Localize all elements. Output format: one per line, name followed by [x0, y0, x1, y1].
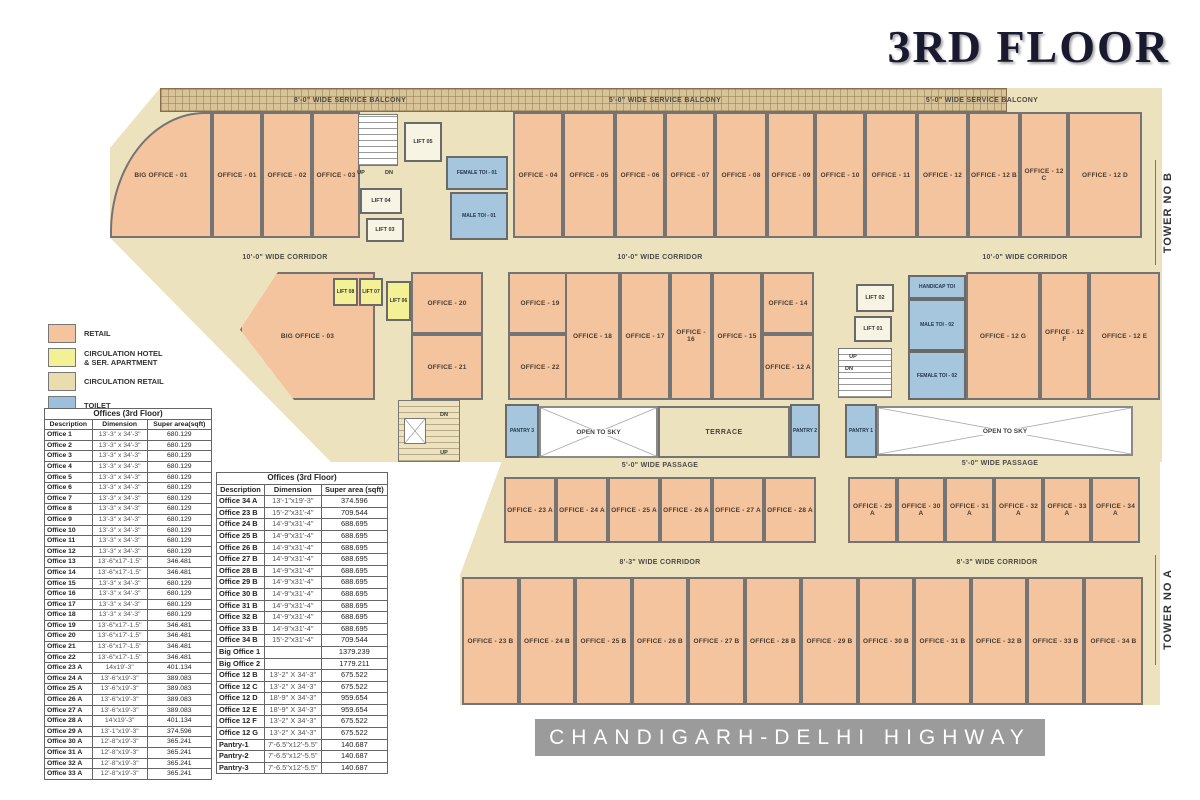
- open-sky-1: OPEN TO SKY: [539, 406, 658, 458]
- pantry-1: PANTRY 1: [845, 404, 877, 458]
- office-08: OFFICE - 08: [715, 112, 767, 238]
- table-title-row: Offices (3rd Floor): [217, 473, 388, 485]
- table-row: Office 30 A12'-8"x19'-3"365.241: [45, 737, 212, 748]
- female-toi-01: FEMALE TOI - 01: [446, 156, 508, 190]
- highway-banner-text: CHANDIGARH-DELHI HIGHWAY: [549, 726, 1031, 750]
- open-sky-2: OPEN TO SKY: [877, 406, 1133, 456]
- tower-no-a: TOWER NO A: [1158, 562, 1178, 657]
- table-row: Office 12 C13'-2" X 34'-3"675.522: [217, 681, 388, 693]
- table-row: Office 32 A12'-8"x19'-3"365.241: [45, 758, 212, 769]
- office-11: OFFICE - 11: [865, 112, 917, 238]
- office-06: OFFICE - 06: [615, 112, 665, 238]
- office-24b: OFFICE - 24 B: [519, 577, 575, 705]
- lift-04: LIFT 04: [360, 188, 402, 214]
- terrace: TERRACE: [658, 406, 790, 458]
- table-row: Office 26 A13'-6"x19'-3"389.083: [45, 695, 212, 706]
- office-34a: OFFICE - 34 A: [1091, 477, 1140, 543]
- table-row: Office 413'-3" x 34'-3"680.129: [45, 461, 212, 472]
- lift-05: LIFT 05: [404, 122, 442, 162]
- liftx-1: [404, 418, 426, 444]
- tower-no-b: TOWER NO B: [1158, 165, 1178, 260]
- office-33b: OFFICE - 33 B: [1027, 577, 1084, 705]
- dn-2: DN: [841, 364, 857, 373]
- table-row: Big Office 11379.239: [217, 646, 388, 658]
- office-33a: OFFICE - 33 A: [1043, 477, 1091, 543]
- offices-table-right: Offices (3rd Floor)DescriptionDimensionS…: [216, 472, 388, 774]
- table-row: Office 1913'-6"x17'-1.5"346.481: [45, 620, 212, 631]
- table-row: Office 2113'-6"x17'-1.5"346.481: [45, 642, 212, 653]
- office-12c: OFFICE - 12 C: [1020, 112, 1068, 238]
- office-12b: OFFICE - 12 B: [968, 112, 1020, 238]
- table-row: Office 1713'-3" x 34'-3"680.129: [45, 599, 212, 610]
- table-row: Office 23 B15'-2"x31'-4"709.544: [217, 507, 388, 519]
- office-12d: OFFICE - 12 D: [1068, 112, 1142, 238]
- table-row: Office 213'-3" x 34'-3"680.129: [45, 440, 212, 451]
- table-row: Office 1813'-3" x 34'-3"680.129: [45, 610, 212, 621]
- table-row: Office 12 D18'-9" X 34'-3"959.654: [217, 693, 388, 705]
- office-23a: OFFICE - 23 A: [504, 477, 556, 543]
- lift-06: LIFT 06: [386, 281, 411, 321]
- retail-swatch: [48, 324, 76, 343]
- up-3: UP: [436, 448, 452, 457]
- circulation-hotel-swatch: [48, 348, 76, 367]
- office-26b: OFFICE - 26 B: [632, 577, 688, 705]
- table-row: Office 28 B14'-9"x31'-4"688.695: [217, 565, 388, 577]
- office-18: OFFICE - 18: [565, 272, 620, 400]
- office-30a: OFFICE - 30 A: [897, 477, 945, 543]
- pantry-3: PANTRY 3: [505, 404, 539, 458]
- office-24a: OFFICE - 24 A: [556, 477, 608, 543]
- table-row: Office 25 B14'-9"x31'-4"688.695: [217, 530, 388, 542]
- corridor-a-label-2: 8'-3" WIDE CORRIDOR: [922, 555, 1072, 569]
- table-title-row: Offices (3rd Floor): [45, 409, 212, 420]
- male-toi-02: MALE TOI - 02: [908, 299, 966, 351]
- office-09: OFFICE - 09: [767, 112, 815, 238]
- office-12: OFFICE - 12: [917, 112, 968, 238]
- table-row: Office 513'-3" x 34'-3"680.129: [45, 472, 212, 483]
- office-22: OFFICE - 22: [508, 334, 572, 400]
- lift-03: LIFT 03: [366, 218, 404, 242]
- table-row: Office 713'-3" x 34'-3"680.129: [45, 493, 212, 504]
- table-row: Office 1513'-3" x 34'-3"680.129: [45, 578, 212, 589]
- table-row: Office 34 B15'-2"x31'-4"709.544: [217, 635, 388, 647]
- office-20: OFFICE - 20: [411, 272, 483, 334]
- office-07: OFFICE - 07: [665, 112, 715, 238]
- table-row: Office 26 B14'-9"x31'-4"688.695: [217, 542, 388, 554]
- office-27b: OFFICE - 27 B: [688, 577, 745, 705]
- up-1: UP: [352, 168, 370, 177]
- office-28b: OFFICE - 28 B: [745, 577, 801, 705]
- table-row: Office 12 E18'-9" X 34'-3"959.654: [217, 704, 388, 716]
- lift-07: LIFT 07: [359, 278, 383, 306]
- office-12f: OFFICE - 12 F: [1040, 272, 1089, 400]
- office-02: OFFICE - 02: [262, 112, 312, 238]
- office-12e: OFFICE - 12 E: [1089, 272, 1160, 400]
- office-29a: OFFICE - 29 A: [848, 477, 897, 543]
- office-29b: OFFICE - 29 B: [801, 577, 858, 705]
- table-row: Office 1113'-3" x 34'-3"680.129: [45, 536, 212, 547]
- male-toi-01: MALE TOI - 01: [450, 192, 508, 240]
- office-01: OFFICE - 01: [212, 112, 262, 238]
- office-28a: OFFICE - 28 A: [764, 477, 816, 543]
- office-31b: OFFICE - 31 B: [914, 577, 971, 705]
- table-row: Office 1313'-6"x17'-1.5"346.481: [45, 557, 212, 568]
- table-row: Office 12 F13'-2" X 34'-3"675.522: [217, 716, 388, 728]
- legend-item-circulation-retail: CIRCULATION RETAIL: [48, 372, 218, 391]
- table-row: Office 12 B13'-2" X 34'-3"675.522: [217, 670, 388, 682]
- office-34b: OFFICE - 34 B: [1084, 577, 1143, 705]
- table-row: Office 30 B14'-9"x31'-4"688.695: [217, 588, 388, 600]
- table-row: Office 1413'-6"x17'-1.5"346.481: [45, 567, 212, 578]
- table-row: Office 24 B14'-9"x31'-4"688.695: [217, 519, 388, 531]
- table-row: Office 613'-3" x 34'-3"680.129: [45, 483, 212, 494]
- table-row: Office 813'-3" x 34'-3"680.129: [45, 504, 212, 515]
- office-21: OFFICE - 21: [411, 334, 483, 400]
- table-row: Office 33 B14'-9"x31'-4"688.695: [217, 623, 388, 635]
- passage-label-1: 5'-0" WIDE PASSAGE: [590, 458, 730, 473]
- office-32b: OFFICE - 32 B: [971, 577, 1027, 705]
- office-12a: OFFICE - 12 A: [762, 334, 814, 400]
- legend-label: CIRCULATION HOTEL & SER. APARTMENT: [84, 349, 163, 367]
- table-header-row: DescriptionDimensionSuper area(sqft): [45, 419, 212, 430]
- dn-1: DN: [380, 168, 398, 177]
- handicap-toi: HANDICAP TOI: [908, 275, 966, 299]
- up-2: UP: [845, 352, 861, 361]
- table-row: Office 1613'-3" x 34'-3"680.129: [45, 589, 212, 600]
- legend-item-retail: RETAIL: [48, 324, 218, 343]
- office-32a: OFFICE - 32 A: [994, 477, 1043, 543]
- legend: RETAIL CIRCULATION HOTEL & SER. APARTMEN…: [48, 324, 218, 420]
- office-04: OFFICE - 04: [513, 112, 563, 238]
- tower-b-leader-line: [1155, 160, 1156, 265]
- floor-plan-page: 3RD FLOOR 8'-0" WIDE SERVICE BALCONY5'-0…: [0, 0, 1200, 800]
- svc-balcony-label-1: 8'-0" WIDE SERVICE BALCONY: [260, 93, 440, 107]
- office-30b: OFFICE - 30 B: [858, 577, 914, 705]
- table-row: Office 27 A13'-6"x19'-3"389.083: [45, 705, 212, 716]
- office-25b: OFFICE - 25 B: [575, 577, 632, 705]
- table-row: Big Office 21779.211: [217, 658, 388, 670]
- legend-item-circulation-hotel: CIRCULATION HOTEL & SER. APARTMENT: [48, 348, 218, 367]
- office-31a: OFFICE - 31 A: [945, 477, 994, 543]
- table-row: Office 31 A12'-8"x19'-3"365.241: [45, 748, 212, 759]
- table-row: Office 31 B14'-9"x31'-4"688.695: [217, 600, 388, 612]
- lift-01: LIFT 01: [854, 316, 892, 342]
- table-row: Office 25 A13'-6"x19'-3"389.083: [45, 684, 212, 695]
- highway-banner: CHANDIGARH-DELHI HIGHWAY: [535, 719, 1045, 756]
- female-toi-02: FEMALE TOI - 02: [908, 351, 966, 400]
- office-25a: OFFICE - 25 A: [608, 477, 660, 543]
- passage-label-2: 5'-0" WIDE PASSAGE: [930, 456, 1070, 471]
- table-row: Office 24 A13'-6"x19'-3"389.083: [45, 673, 212, 684]
- tower-a-leader-line: [1155, 555, 1156, 665]
- dn-3: DN: [436, 410, 452, 419]
- stair-1: [358, 114, 398, 166]
- corridor-b-label-2: 10'-0" WIDE CORRIDOR: [585, 250, 735, 264]
- table-row: Office 32 B14'-9"x31'-4"688.695: [217, 612, 388, 624]
- table-row: Pantry-37'-6.5"x12'-5.5"140.687: [217, 762, 388, 774]
- office-10: OFFICE - 10: [815, 112, 865, 238]
- office-17: OFFICE - 17: [620, 272, 670, 400]
- office-19: OFFICE - 19: [508, 272, 572, 334]
- lift-08: LIFT 08: [333, 278, 358, 306]
- table-row: Office 2013'-6"x17'-1.5"346.481: [45, 631, 212, 642]
- svc-balcony-label-2: 5'-0" WIDE SERVICE BALCONY: [575, 93, 755, 107]
- legend-label: RETAIL: [84, 329, 111, 338]
- office-05: OFFICE - 05: [563, 112, 615, 238]
- legend-label: CIRCULATION RETAIL: [84, 377, 164, 386]
- table-row: Office 12 G13'-2" X 34'-3"675.522: [217, 728, 388, 740]
- office-14: OFFICE - 14: [762, 272, 814, 334]
- table-row: Office 29 B14'-9"x31'-4"688.695: [217, 577, 388, 589]
- office-23b: OFFICE - 23 B: [462, 577, 519, 705]
- corridor-b-label-1: 10'-0" WIDE CORRIDOR: [210, 250, 360, 264]
- office-26a: OFFICE - 26 A: [660, 477, 712, 543]
- office-12g: OFFICE - 12 G: [966, 272, 1040, 400]
- table-row: Office 29 A13'-1"x19'-3"374.596: [45, 726, 212, 737]
- corridor-a-label-1: 8'-3" WIDE CORRIDOR: [585, 555, 735, 569]
- pantry-2: PANTRY 2: [790, 404, 820, 458]
- table-row: Office 313'-3" x 34'-3"680.129: [45, 451, 212, 462]
- table-row: Office 33 A12'-8"x19'-3"365.241: [45, 769, 212, 780]
- table-row: Pantry-27'-6.5"x12'-5.5"140.687: [217, 751, 388, 763]
- office-27a: OFFICE - 27 A: [712, 477, 764, 543]
- table-row: Office 2213'-6"x17'-1.5"346.481: [45, 652, 212, 663]
- table-row: Office 23 A14x19'-3"401.134: [45, 663, 212, 674]
- table-row: Office 113'-3" x 34'-3"680.129: [45, 430, 212, 441]
- table-header-row: DescriptionDimensionSuper area (sqft): [217, 484, 388, 496]
- table-row: Office 913'-3" x 34'-3"680.129: [45, 514, 212, 525]
- lift-02: LIFT 02: [856, 284, 894, 312]
- circulation-retail-swatch: [48, 372, 76, 391]
- table-row: Pantry-17'-6.5"x12'-5.5"140.687: [217, 739, 388, 751]
- table-row: Office 28 A14'x19'-3"401.134: [45, 716, 212, 727]
- table-row: Office 27 B14'-9"x31'-4"688.695: [217, 554, 388, 566]
- table-row: Office 1213'-3" x 34'-3"680.129: [45, 546, 212, 557]
- corridor-b-label-3: 10'-0" WIDE CORRIDOR: [950, 250, 1100, 264]
- office-16: OFFICE - 16: [670, 272, 712, 400]
- office-15: OFFICE - 15: [712, 272, 762, 400]
- svc-balcony-label-3: 5'-0" WIDE SERVICE BALCONY: [892, 93, 1072, 107]
- offices-table-left: Offices (3rd Floor)DescriptionDimensionS…: [44, 408, 212, 780]
- table-row: Office 1013'-3" x 34'-3"680.129: [45, 525, 212, 536]
- table-row: Office 34 A13'-1"x19'-3"374.596: [217, 496, 388, 508]
